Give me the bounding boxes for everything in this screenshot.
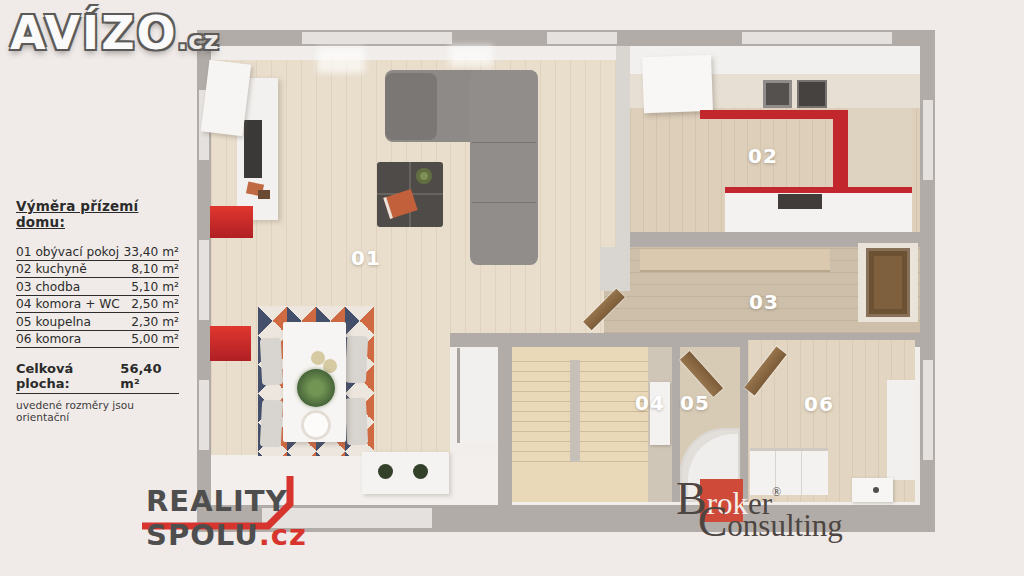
dining-chair-3	[345, 335, 368, 383]
room-name: 02 kuchyně	[16, 262, 87, 276]
room-area: 5,10 m²	[131, 280, 179, 294]
kitchen-peninsula-sink	[778, 194, 822, 209]
table-bowl	[301, 410, 331, 440]
sofa-seam-2	[472, 202, 536, 203]
floor-plan: 01 02 03 04 05 06	[197, 30, 935, 532]
living-room-window-band	[211, 46, 617, 60]
reality-spolu-logo: REALITY SPOLU.cz	[140, 470, 330, 562]
legend-note: uvedené rozměry jsou orientační	[16, 399, 179, 423]
avizo-logo-name: AVÍZO	[10, 6, 178, 60]
broker-line2: Consulting	[698, 496, 843, 547]
reality-spolu-tld: .cz	[259, 518, 307, 552]
dining-chair-2	[260, 399, 283, 447]
kitchen-counter-red-edge-right	[833, 110, 848, 196]
legend-row: 02 kuchyně 8,10 m²	[16, 261, 179, 279]
legend-row: 04 komora + WC 2,50 m²	[16, 296, 179, 314]
room-area: 8,10 m²	[131, 262, 179, 276]
kitchen-stove	[797, 80, 827, 108]
dining-chair-1	[260, 337, 283, 385]
window-right-1	[923, 100, 933, 180]
red-wall-cabinet-2	[210, 326, 251, 361]
room-name: 06 komora	[16, 332, 81, 346]
stairs-flight-left	[512, 360, 570, 462]
window-left-2	[199, 240, 209, 320]
room-area: 5,00 m²	[131, 332, 179, 346]
red-wall-cabinet-1	[210, 206, 253, 238]
window-left-3	[199, 380, 209, 450]
flyer-page: 01 02 03 04 05 06 AVÍZO.cz Výměra přízem…	[0, 0, 1024, 576]
total-value: 56,40 m²	[120, 361, 179, 391]
legend-row: 03 chodba 5,10 m²	[16, 278, 179, 296]
sideboard-plant-1	[378, 464, 393, 479]
room-label-03: 03	[749, 290, 779, 314]
ceiling-light-2	[449, 45, 493, 67]
room-name: 03 chodba	[16, 280, 80, 294]
sofa-seam-1	[472, 142, 536, 143]
tv-screen	[244, 120, 262, 178]
wall-stairs-left	[498, 347, 512, 505]
broker-consulting-logo: Broker® Consulting	[672, 476, 902, 572]
kitchen-fridge	[642, 55, 713, 113]
wall-living-kitchen	[616, 46, 630, 247]
area-legend: Výměra přízemí domu: 01 obývací pokoj 33…	[16, 198, 179, 423]
window-right-2	[923, 360, 933, 460]
sofa-chaise	[385, 73, 437, 140]
ceiling-light-1	[317, 47, 365, 73]
sofa-right	[470, 70, 538, 265]
legend-row: 01 obývací pokoj 33,40 m²	[16, 243, 179, 261]
legend-title: Výměra přízemí domu:	[16, 198, 179, 230]
room-label-06: 06	[804, 392, 834, 416]
stairs-stringer	[570, 360, 580, 462]
legend-row: 06 komora 5,00 m²	[16, 331, 179, 349]
room-label-02: 02	[748, 144, 778, 168]
sideboard-plant-2	[413, 464, 428, 479]
avizo-logo: AVÍZO.cz	[10, 6, 220, 60]
entry-door	[866, 248, 910, 317]
window-top-2	[547, 32, 617, 44]
total-label: Celková plocha:	[16, 361, 120, 391]
reality-spolu-line2: SPOLU.cz	[146, 518, 307, 552]
consulting-rest: onsulting	[727, 508, 842, 543]
kitchen-counter-right	[848, 108, 912, 196]
room-label-05: 05	[680, 391, 710, 415]
room-name: 04 komora + WC	[16, 297, 120, 311]
hallway-sideboard	[640, 249, 830, 272]
avizo-logo-tld: .cz	[178, 26, 220, 55]
room-label-04: 04	[635, 391, 665, 415]
table-plant	[297, 369, 335, 407]
wall-stub-hall-left	[600, 247, 630, 291]
room-name: 05 koupelna	[16, 315, 91, 329]
sideboard	[362, 452, 449, 494]
room-name: 01 obývací pokoj	[16, 245, 119, 259]
room-label-01: 01	[351, 246, 381, 270]
room06-window-light	[887, 380, 915, 480]
window-top-1	[302, 32, 452, 44]
reality-spolu-line1: REALITY	[146, 484, 288, 518]
legend-row: 05 koupelna 2,30 m²	[16, 313, 179, 331]
window-top-3	[742, 32, 892, 44]
kitchen-sink	[763, 80, 792, 108]
reality-spolu-word: SPOLU	[146, 518, 259, 552]
tv-decor-2	[258, 190, 270, 199]
dining-chair-4	[345, 397, 368, 445]
room-area: 2,50 m²	[131, 297, 179, 311]
coffee-table-plate	[416, 168, 432, 184]
kitchen-counter-red-edge-top	[700, 110, 848, 119]
legend-total: Celková plocha: 56,40 m²	[16, 361, 179, 394]
room-area: 2,30 m²	[131, 315, 179, 329]
consulting-initial: C	[698, 497, 727, 546]
open-door-top-left	[201, 60, 251, 137]
room-area: 33,40 m²	[123, 245, 179, 259]
legend-rows: 01 obývací pokoj 33,40 m² 02 kuchyně 8,1…	[16, 243, 179, 348]
